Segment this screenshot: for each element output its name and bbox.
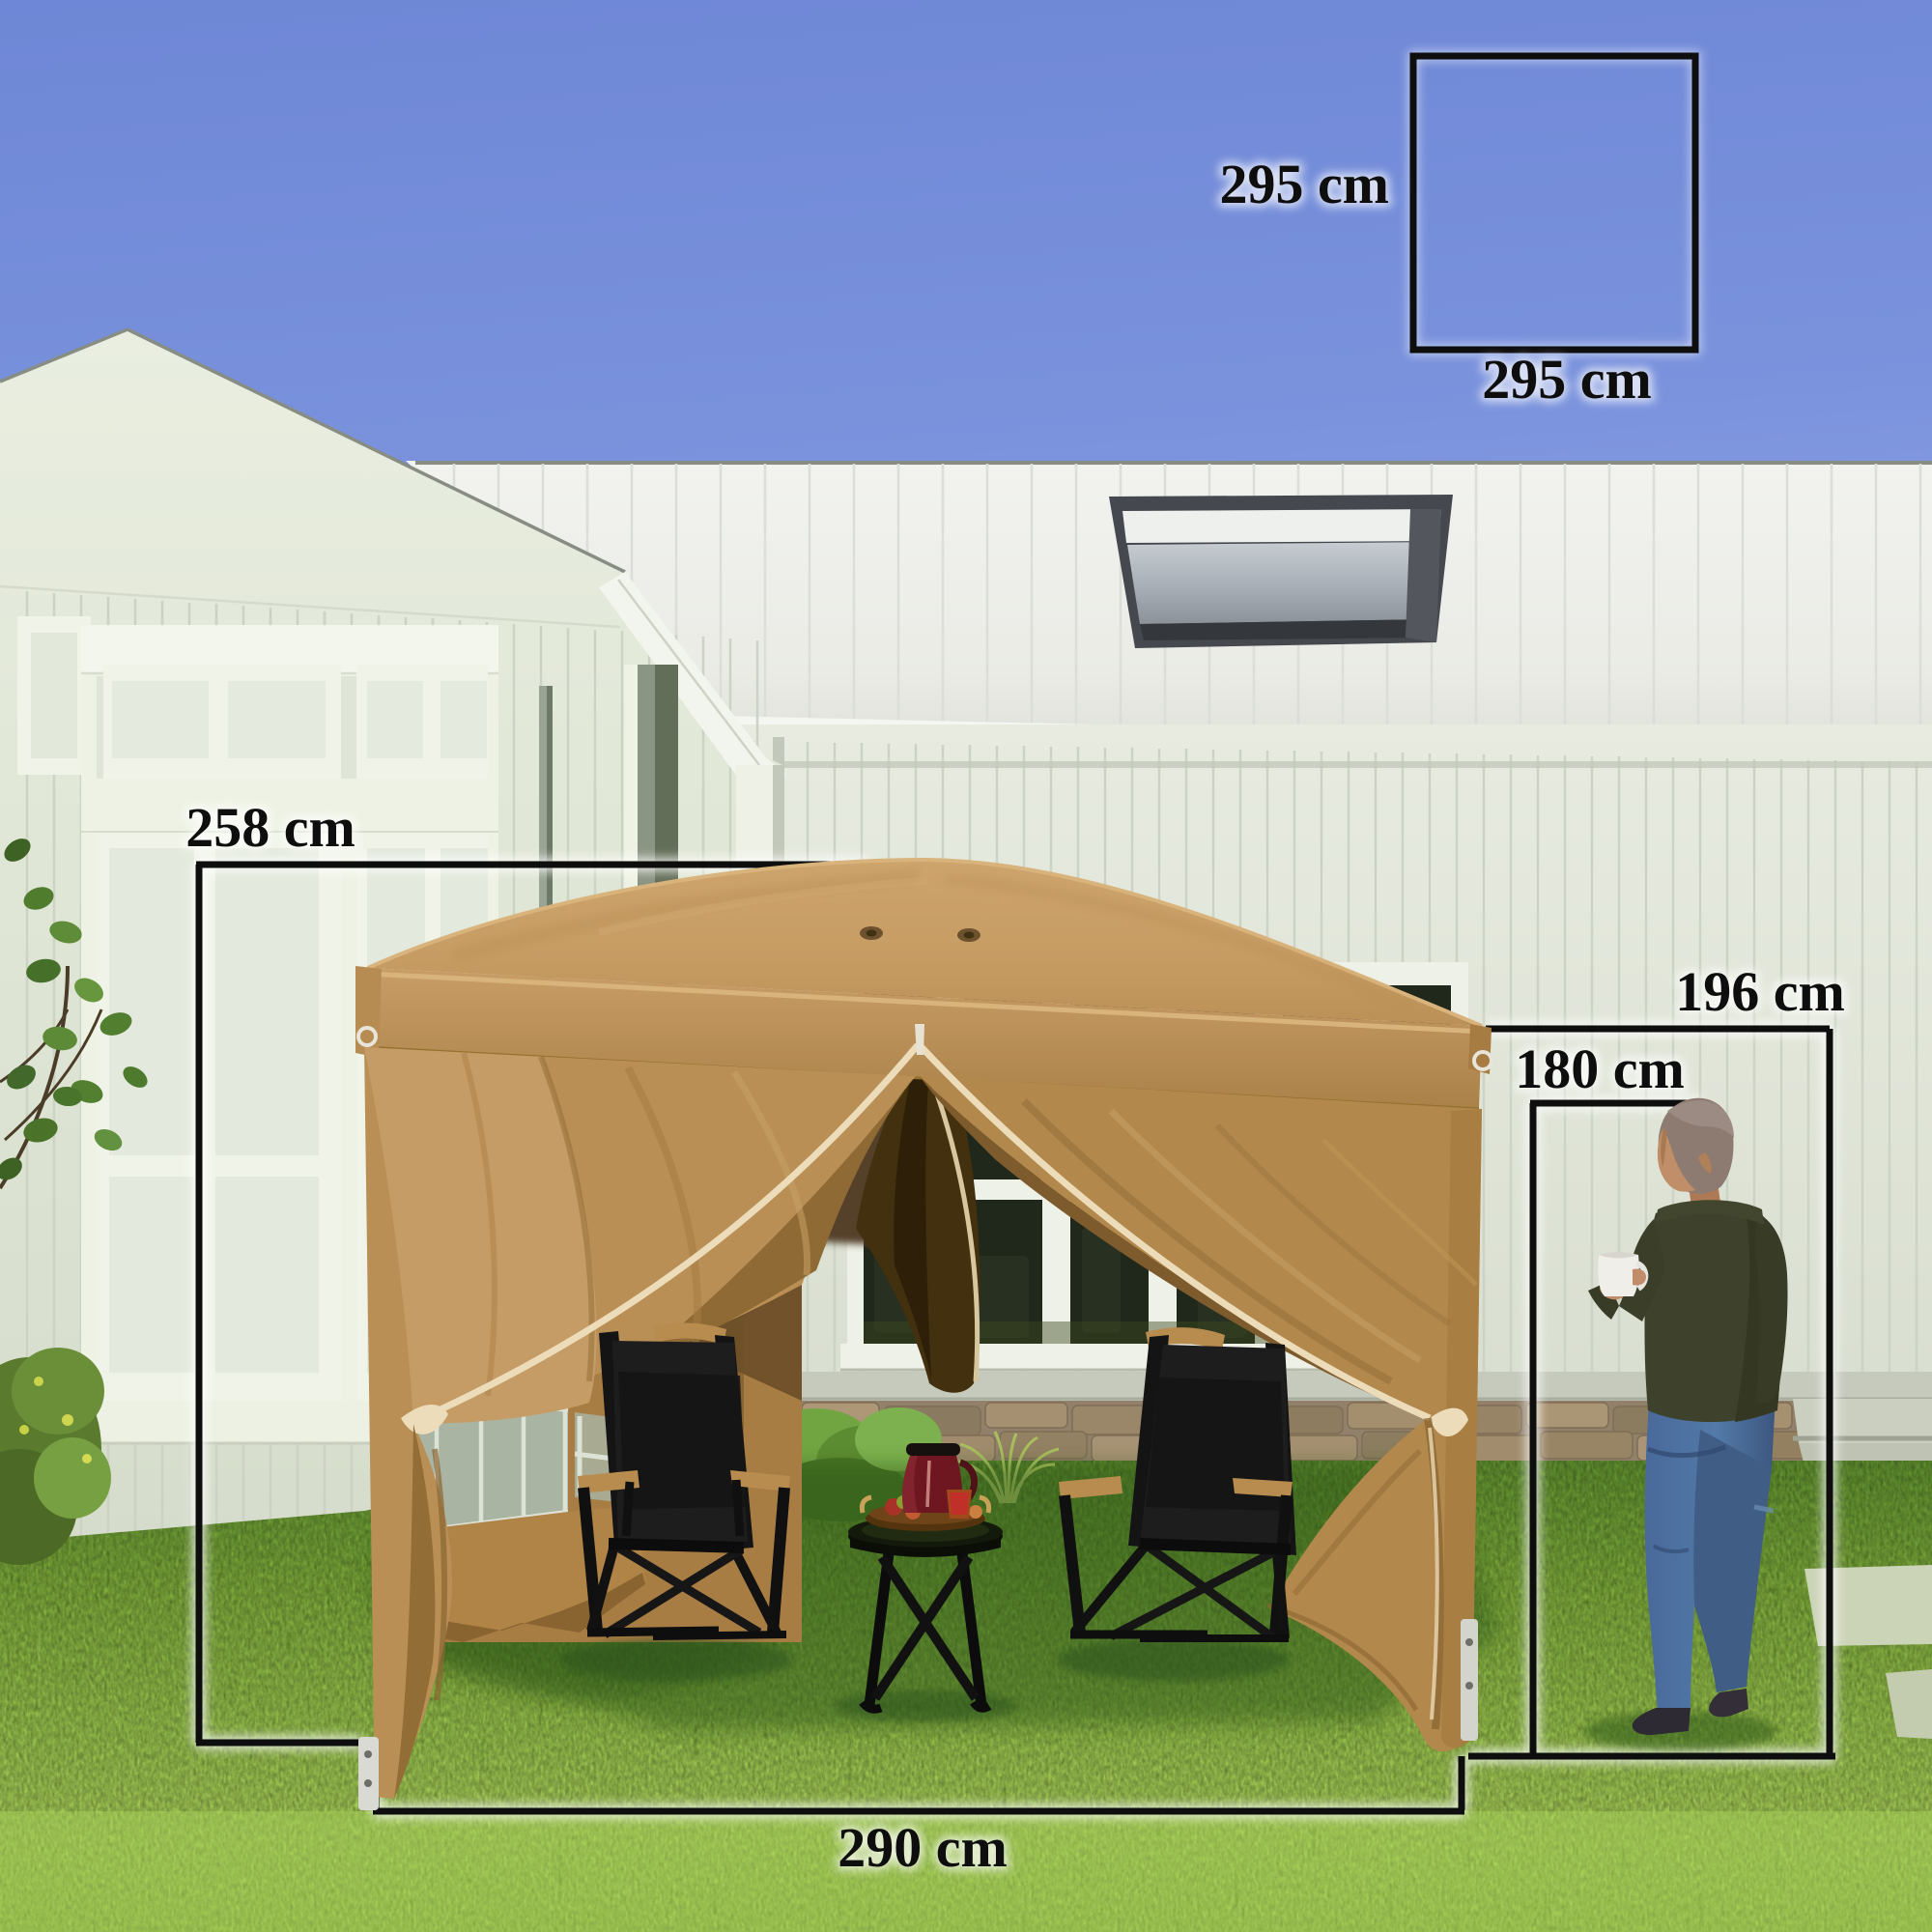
- svg-text:258 cm: 258 cm: [185, 796, 355, 859]
- svg-text:180 cm: 180 cm: [1515, 1037, 1685, 1100]
- svg-text:295 cm: 295 cm: [1219, 153, 1389, 215]
- svg-text:295 cm: 295 cm: [1482, 348, 1652, 411]
- svg-text:290 cm: 290 cm: [838, 1816, 1008, 1879]
- svg-text:196 cm: 196 cm: [1675, 960, 1845, 1023]
